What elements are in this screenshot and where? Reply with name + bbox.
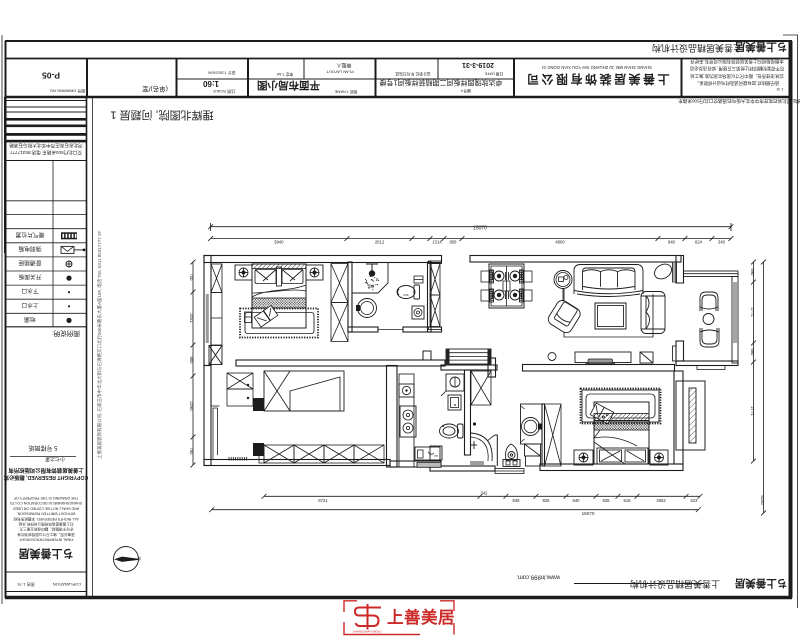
svg-text:SHANGSHAN MEIJU: SHANGSHAN MEIJU [353, 630, 382, 634]
svg-text:地漏: 地漏 [24, 315, 36, 323]
svg-text:856: 856 [450, 239, 458, 244]
svg-text:1314: 1314 [432, 239, 442, 244]
svg-text:违者必究。施工尺寸以现场实测为准: 违者必究。施工尺寸以现场实测为准 [17, 532, 75, 537]
svg-text:平面布局小图: 平面布局小图 [257, 79, 320, 92]
svg-text:COPYRIGHT RESERVED, 翻版必究: COPYRIGHT RESERVED, 翻版必究 [3, 474, 88, 482]
svg-text:15070: 15070 [582, 511, 595, 516]
svg-text:下水口: 下水口 [21, 287, 39, 295]
svg-text:河北省石家庄市中华北大街与石清路: 河北省石家庄市中华北大街与石清路 [9, 142, 83, 149]
svg-text:590: 590 [750, 269, 755, 277]
svg-text:设计单位 年月日完成: 设计单位 年月日完成 [395, 72, 430, 77]
svg-text:523: 523 [691, 498, 699, 503]
svg-text:940: 940 [668, 239, 676, 244]
svg-text:SHANG SHAN MEI JU ZHUANG SHI Y: SHANG SHAN MEI JU ZHUANG SHI YOU XIAN GO… [542, 65, 652, 70]
svg-text:上善美居精品设计机构: 上善美居精品设计机构 [630, 579, 720, 590]
svg-text:图名 T.NAME: 图名 T.NAME [334, 90, 357, 95]
svg-text:824: 824 [695, 239, 703, 244]
svg-text:THE DRAWING IS THE PROPERTY OF: THE DRAWING IS THE PROPERTY OF [13, 496, 78, 500]
svg-text:设计 T.DESIGN: 设计 T.DESIGN [208, 71, 236, 77]
svg-text:ALL RIGHTS RESERVED. 本图纸所有权: ALL RIGHTS RESERVED. 本图纸所有权 [13, 517, 79, 522]
svg-text:826: 826 [603, 498, 611, 503]
svg-text:2019-3-31: 2019-3-31 [462, 61, 494, 68]
svg-text:上善美居装饰有限公司, 石家庄市中华北大街与石清路交口北行5: 上善美居装饰有限公司, 石家庄市中华北大街与石清路交口北行500米路东大厦A座1… [96, 230, 103, 459]
svg-text:342: 342 [481, 491, 489, 496]
svg-text:1771: 1771 [750, 307, 755, 317]
svg-text:上水口: 上水口 [21, 301, 39, 309]
svg-text:516: 516 [624, 498, 632, 503]
svg-text:上善美居精品设计机构: 上善美居精品设计机构 [652, 43, 742, 54]
svg-text:图例说明:: 图例说明: [52, 330, 80, 339]
svg-text:FINAL INTERPRETATION RIGHT.: FINAL INTERPRETATION RIGHT. [18, 538, 73, 542]
svg-text:ち上善美居: ち上善美居 [19, 547, 74, 561]
svg-text:请仔细核对,如有疑问请及时与设计师联系。: 请仔细核对,如有疑问请及时与设计师联系。 [695, 80, 780, 87]
svg-text:交口北行500米路东 电话:85317777: 交口北行500米路东 电话:85317777 [10, 149, 82, 156]
svg-text:2962: 2962 [656, 498, 666, 503]
svg-text:740: 740 [189, 274, 194, 282]
svg-text:15070: 15070 [473, 226, 487, 232]
svg-text:4800: 4800 [555, 239, 565, 244]
svg-text:小七之家: 小七之家 [45, 456, 65, 463]
svg-text:许可不得复制、翻印或转交第三方,: 许可不得复制、翻印或转交第三方, [19, 527, 74, 532]
svg-text:理辉北图院, 问题层 1: 理辉北图院, 问题层 1 [110, 109, 213, 123]
svg-text:本图纸版权归上善美居装饰有限公司所有,未经许: 本图纸版权归上善美居装饰有限公司所有,未经许 [690, 58, 784, 65]
svg-text:地址:河北省石家庄市中华北大街与石清路交口北行500米路东: 地址:河北省石家庄市中华北大街与石清路交口北行500米路东 [678, 98, 800, 105]
svg-text:2290: 2290 [189, 401, 194, 411]
svg-text:900: 900 [403, 293, 408, 297]
svg-text:AND SHALL NOT BE COPIED OR USE: AND SHALL NOT BE COPIED OR USED [12, 506, 79, 510]
svg-text:3940: 3940 [274, 239, 284, 244]
svg-text:卓达玫瑰园样板间二期精装样板间1号楼: 卓达玫瑰园样板间二期精装样板间1号楼 [380, 79, 503, 88]
svg-text:PLAN LAYOUT: PLAN LAYOUT [326, 70, 354, 75]
svg-text:审图人: 审图人 [336, 62, 351, 69]
svg-text:5 号楼图纸: 5 号楼图纸 [28, 444, 57, 452]
svg-text:ち上善美居: ち上善美居 [734, 41, 787, 54]
svg-text:WITHOUT WRITTEN PERMISSION.: WITHOUT WRITTEN PERMISSION. [17, 512, 76, 516]
svg-text:归上善美居装饰有限公司所有,未经: 归上善美居装饰有限公司所有,未经 [18, 522, 73, 527]
svg-text:5240: 5240 [760, 495, 765, 505]
svg-text:强弱电箱: 强弱电箱 [18, 245, 41, 253]
svg-text:COPLANATION: COPLANATION [53, 582, 81, 587]
svg-text:开关面板: 开关面板 [18, 273, 41, 281]
svg-text:淋浴: 淋浴 [367, 284, 374, 289]
svg-text:760: 760 [189, 448, 194, 456]
svg-text:848: 848 [513, 498, 521, 503]
svg-text:2012: 2012 [375, 239, 385, 244]
svg-text:900: 900 [189, 357, 194, 365]
svg-text:暖气片位置: 暖气片位置 [15, 231, 44, 239]
svg-text:840: 840 [573, 498, 581, 503]
svg-text:北: 北 [137, 557, 141, 562]
svg-text:6721: 6721 [318, 498, 328, 503]
svg-text:日期 DATE: 日期 DATE [484, 71, 503, 76]
svg-text:580: 580 [750, 349, 755, 357]
svg-text:826: 826 [543, 498, 551, 503]
svg-text:上善美居装饰有限公司版权所有: 上善美居装饰有限公司版权所有 [8, 467, 84, 475]
svg-text:ш: ш [434, 454, 437, 459]
svg-text:1:60: 1:60 [202, 79, 219, 88]
svg-text:可不得复制翻印转让给第三方使用, 如有违反必追: 可不得复制翻印转让给第三方使用, 如有违反必追 [689, 65, 784, 72]
svg-text:www.ln999.com.: www.ln999.com. [516, 574, 561, 580]
svg-text:ち上善美居: ち上善美居 [734, 577, 787, 590]
svg-text:P-05: P-05 [42, 71, 60, 81]
svg-text:(单名)/室: (单名)/室 [142, 85, 168, 94]
svg-text:340: 340 [718, 239, 726, 244]
svg-text:编号4: 编号4 [461, 89, 471, 94]
svg-text:比例 SCALE: 比例 SCALE [213, 89, 236, 95]
svg-text:2771: 2771 [750, 406, 755, 416]
svg-text:普通插座: 普通插座 [18, 259, 41, 267]
svg-text:SHANGSHANMEIJU DECORATION CO.L: SHANGSHANMEIJU DECORATION CO.LTD [10, 501, 83, 505]
svg-text:上善美居装饰有限公司: 上善美居装饰有限公司 [524, 72, 669, 87]
svg-text:究其法律责任。图中尺寸以现场实测为准,施工前: 究其法律责任。图中尺寸以现场实测为准,施工前 [690, 72, 784, 79]
svg-text:审定 T.A5: 审定 T.A5 [277, 72, 293, 77]
svg-text:图号 DRAWING NO.: 图号 DRAWING NO. [49, 89, 86, 95]
svg-text:3251: 3251 [189, 313, 194, 323]
svg-text:1 /5: 1 /5 [776, 87, 783, 92]
svg-text:图名 1:75: 图名 1:75 [17, 582, 35, 588]
svg-text:上善美居: 上善美居 [387, 607, 455, 627]
